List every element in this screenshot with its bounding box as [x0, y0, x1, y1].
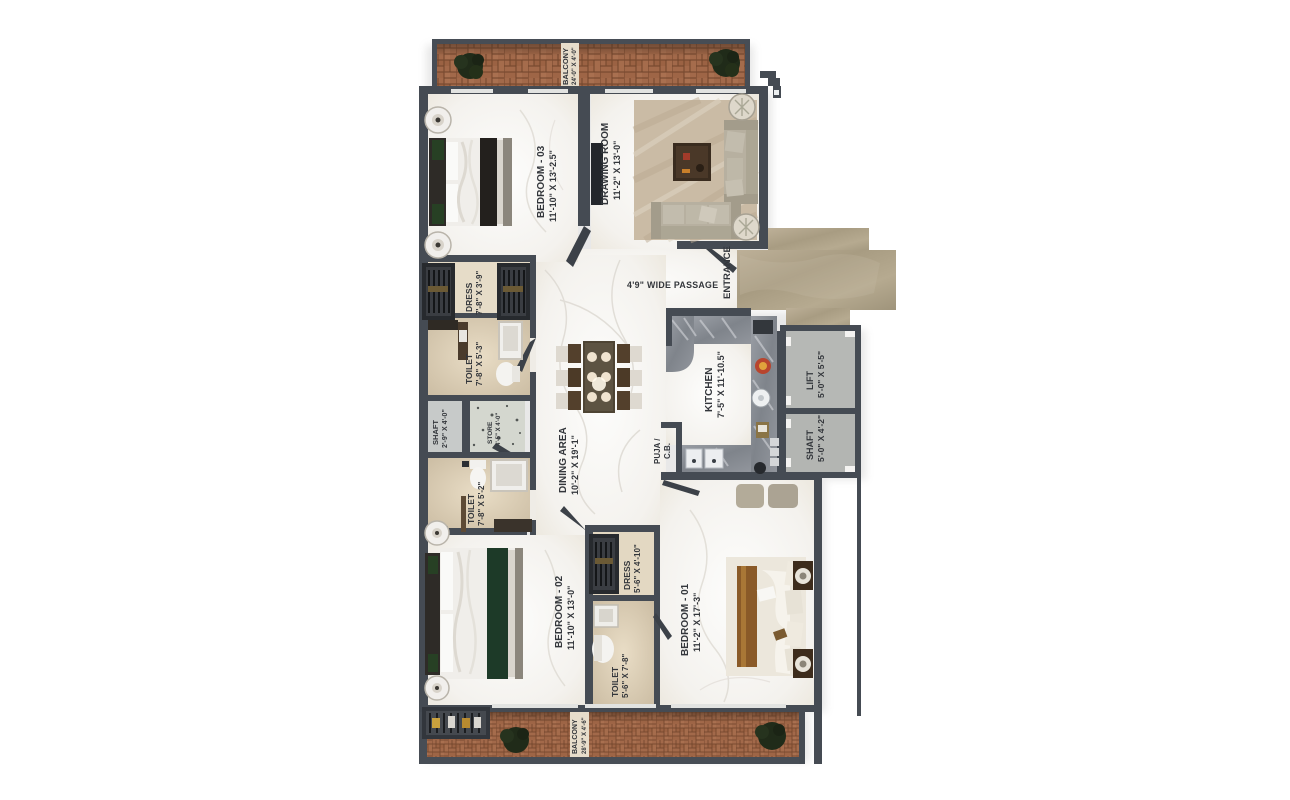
svg-text:10'-2" X 19'-1": 10'-2" X 19'-1"	[570, 435, 580, 495]
svg-text:11'-2" X 17'-3": 11'-2" X 17'-3"	[692, 593, 702, 652]
svg-text:PUJA /: PUJA /	[653, 438, 662, 464]
svg-text:5'-6" X 7'-8": 5'-6" X 7'-8"	[621, 653, 630, 698]
svg-text:KITCHEN: KITCHEN	[704, 368, 715, 412]
svg-text:4'9" WIDE PASSAGE: 4'9" WIDE PASSAGE	[627, 280, 718, 290]
svg-text:DINING AREA: DINING AREA	[558, 427, 569, 493]
svg-text:STORE: STORE	[487, 421, 494, 444]
svg-text:SHAFT: SHAFT	[805, 430, 815, 460]
svg-text:4'-5" X 4'-0": 4'-5" X 4'-0"	[496, 413, 502, 446]
svg-text:7'-8" X 5'-3": 7'-8" X 5'-3"	[475, 341, 484, 386]
svg-text:BEDROOM - 01: BEDROOM - 01	[680, 583, 691, 656]
svg-text:ENTRANCE: ENTRANCE	[722, 246, 733, 299]
svg-text:5'-6" X 4'-10": 5'-6" X 4'-10"	[633, 544, 642, 593]
svg-text:2'-9" X 4'-0": 2'-9" X 4'-0"	[442, 409, 449, 448]
svg-text:11'-10" X 13'-0": 11'-10" X 13'-0"	[566, 586, 576, 650]
svg-text:TOILET: TOILET	[464, 353, 474, 384]
svg-text:TOILET: TOILET	[610, 666, 620, 697]
svg-text:C.B.: C.B.	[663, 443, 672, 459]
svg-text:BALCONY: BALCONY	[572, 719, 579, 754]
svg-text:7'-8" X 3'-9": 7'-8" X 3'-9"	[475, 270, 484, 315]
svg-text:BALCONY: BALCONY	[561, 48, 570, 85]
svg-text:7'-8" X 5'-2": 7'-8" X 5'-2"	[477, 481, 486, 526]
svg-text:TOILET: TOILET	[466, 493, 476, 524]
svg-text:BEDROOM - 03: BEDROOM - 03	[536, 145, 547, 218]
svg-text:5'-0" X 5'-5": 5'-0" X 5'-5"	[816, 351, 826, 398]
svg-text:11'-2" X 13'-0": 11'-2" X 13'-0"	[612, 141, 622, 200]
svg-text:BEDROOM - 02: BEDROOM - 02	[554, 575, 565, 648]
svg-text:LIFT: LIFT	[805, 371, 815, 390]
svg-text:DRESS: DRESS	[464, 282, 474, 312]
svg-text:5'-0" X 4'-2": 5'-0" X 4'-2"	[816, 415, 826, 462]
svg-text:11'-10" X 13'-2.5": 11'-10" X 13'-2.5"	[548, 150, 558, 222]
svg-text:28'-9" X 4'-6": 28'-9" X 4'-6"	[582, 717, 588, 754]
svg-text:DRAWING ROOM: DRAWING ROOM	[600, 123, 611, 205]
svg-text:SHAFT: SHAFT	[431, 420, 440, 445]
svg-text:DRESS: DRESS	[622, 560, 632, 590]
svg-text:24'-0" X 4'-0": 24'-0" X 4'-0"	[571, 47, 578, 85]
svg-text:7'-5" X 11'-10.5": 7'-5" X 11'-10.5"	[716, 351, 726, 418]
